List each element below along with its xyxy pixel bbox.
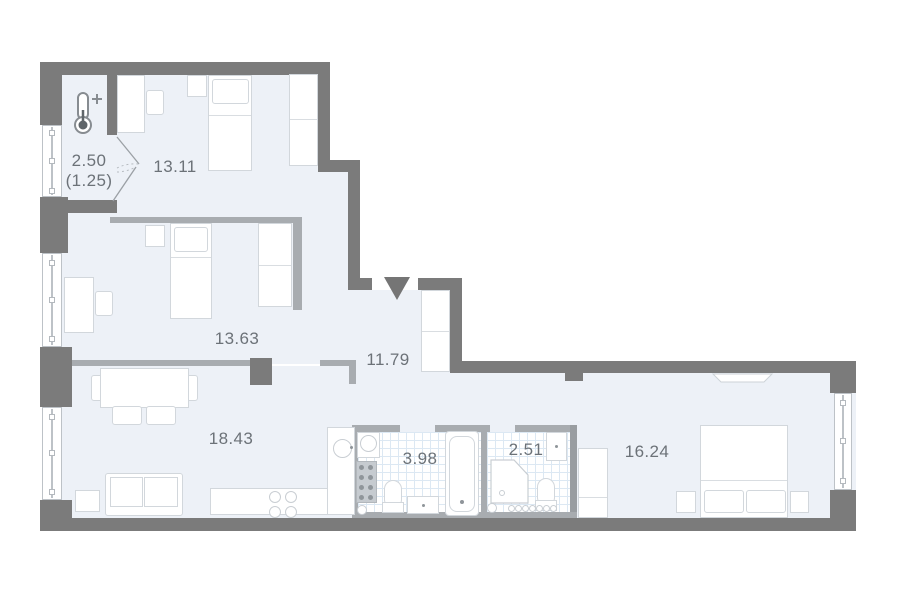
- wall-left: [40, 347, 72, 407]
- towel-radiator-dot: [522, 505, 529, 512]
- closet-divider: [422, 331, 449, 332]
- bathtub-drain: [460, 500, 464, 504]
- wall-step: [348, 160, 360, 290]
- stove-burner: [269, 491, 281, 503]
- wall-left: [40, 62, 62, 125]
- shelf-knob: [359, 485, 364, 490]
- shelf-knob: [368, 475, 373, 480]
- shelf-knob: [368, 495, 373, 500]
- room-area-label: 18.43: [196, 429, 266, 449]
- balcony-area-reduced: (1.25): [66, 171, 113, 190]
- bed-blanket-line: [701, 480, 787, 481]
- stove-burner: [269, 506, 281, 518]
- stove-burner: [285, 491, 297, 503]
- room-area-label: 11.79: [353, 350, 423, 370]
- entry-arrow-icon: [383, 277, 411, 301]
- toilet-tank: [382, 502, 404, 513]
- wall-entry-left: [348, 278, 372, 290]
- wardrobe-divider: [259, 265, 291, 266]
- room-area-label: 2.51: [496, 440, 556, 460]
- room-area-label: 2.50 (1.25): [58, 151, 120, 191]
- wall-balcony-right: [107, 62, 117, 135]
- window-handle: [49, 450, 55, 456]
- floor-plan: 2.50 (1.25) 13.11 13.63 11.79 18.43 3.98…: [0, 0, 900, 600]
- nightstand: [790, 491, 809, 513]
- wardrobe-divider: [579, 497, 607, 498]
- floor-drain: [487, 503, 497, 513]
- shelf-knob: [359, 475, 364, 480]
- washing-machine-door: [360, 435, 377, 452]
- towel-radiator-dot: [515, 505, 522, 512]
- wall-top: [40, 62, 330, 75]
- wall-hall-right: [450, 278, 462, 373]
- window-handle: [49, 260, 55, 266]
- window-handle: [49, 297, 55, 303]
- wall-bathroom: [515, 425, 577, 432]
- window-handle: [49, 489, 55, 495]
- wall-step: [318, 62, 330, 172]
- towel-radiator-dot: [508, 505, 515, 512]
- towel-radiator-dot: [543, 505, 550, 512]
- dining-chair: [146, 406, 176, 425]
- wall-bathroom: [352, 425, 400, 432]
- shower-cabin: [491, 460, 529, 504]
- towel-radiator-dot: [529, 505, 536, 512]
- chair: [95, 291, 113, 316]
- shelf-knob: [368, 465, 373, 470]
- wall-wc-right: [570, 425, 577, 518]
- bed-pillow: [746, 490, 786, 513]
- kitchen-faucet: [350, 446, 353, 449]
- tv-console: [713, 373, 773, 383]
- window-handle: [840, 478, 846, 484]
- wall-pillar: [250, 358, 272, 385]
- desk: [64, 277, 94, 333]
- towel-radiator-dot: [536, 505, 543, 512]
- wall-stub: [565, 373, 583, 381]
- shelf-knob: [359, 495, 364, 500]
- wardrobe: [289, 74, 318, 166]
- wall-bottom: [40, 518, 856, 531]
- kitchen-sink: [333, 439, 352, 458]
- window-handle: [840, 400, 846, 406]
- shelf-knob: [359, 465, 364, 470]
- window-handle: [49, 336, 55, 342]
- window-handle: [49, 130, 55, 136]
- window-handle: [49, 414, 55, 420]
- wall-balcony-bottom: [40, 200, 117, 213]
- room-area-label: 16.24: [612, 442, 682, 462]
- dining-table: [100, 368, 189, 408]
- side-table: [75, 490, 100, 512]
- bed-pillow: [174, 227, 208, 252]
- nightstand: [676, 491, 696, 513]
- wall-right: [830, 361, 856, 393]
- thermometer-plus-icon: [68, 90, 106, 138]
- bed-pillow: [212, 79, 249, 104]
- balcony-area: 2.50: [72, 151, 107, 170]
- room-area-label: 13.11: [140, 157, 210, 177]
- towel-radiator-dot: [550, 505, 557, 512]
- wardrobe-divider: [290, 119, 317, 120]
- wall-wing-top: [450, 361, 856, 373]
- sofa-cushion: [110, 477, 143, 507]
- room-area-label: 13.63: [202, 329, 272, 349]
- sink-drain: [422, 504, 425, 507]
- window-handle: [840, 438, 846, 444]
- bed-pillow: [704, 490, 744, 513]
- desk: [117, 75, 145, 133]
- wall-partition: [293, 217, 302, 310]
- window-handle: [49, 188, 55, 194]
- wall-bathroom-divider: [481, 432, 487, 512]
- wall-partition: [62, 360, 251, 366]
- nightstand: [145, 225, 165, 247]
- dining-chair: [112, 406, 142, 425]
- chair: [146, 90, 164, 115]
- room-area-label: 3.98: [390, 449, 450, 469]
- bed-blanket-line: [171, 257, 211, 258]
- wardrobe: [578, 448, 608, 518]
- sofa-cushion: [144, 477, 178, 507]
- wall-right: [830, 490, 856, 531]
- shelf-knob: [368, 485, 373, 490]
- bed-blanket-line: [209, 115, 251, 116]
- floor-drain: [357, 505, 367, 515]
- nightstand: [187, 75, 207, 97]
- stove-burner: [285, 506, 297, 518]
- window-handle: [49, 158, 55, 164]
